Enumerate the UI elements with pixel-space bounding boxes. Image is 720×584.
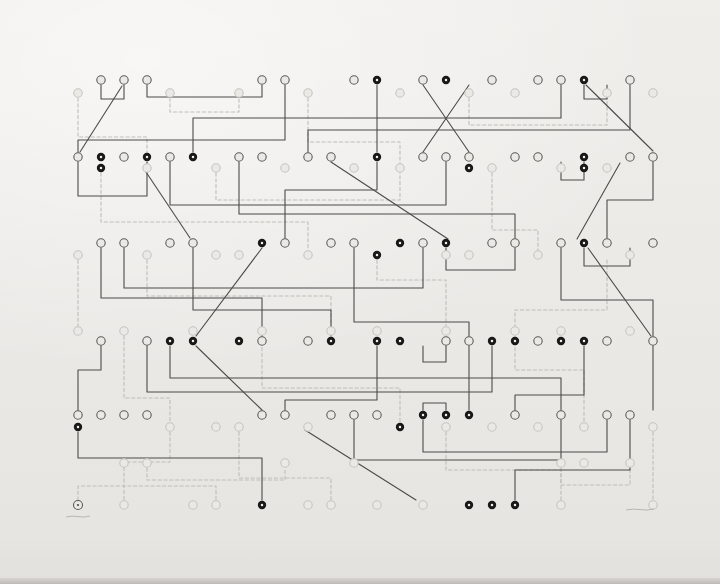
network-node-open-dark — [304, 153, 312, 161]
network-node-open-dark — [442, 337, 450, 345]
network-node-open-dark — [511, 411, 519, 419]
network-node-filled-center — [192, 340, 195, 343]
network-node-open-light — [74, 89, 82, 97]
network-node-filled-center — [445, 79, 448, 82]
network-node-open-light — [649, 501, 657, 509]
network-node-open-light — [166, 423, 174, 431]
network-node-open-dark — [373, 411, 381, 419]
network-node-open-light — [212, 251, 220, 259]
network-edge-solid — [196, 248, 262, 336]
network-node-open-light — [304, 423, 312, 431]
network-edge-solid — [354, 420, 561, 460]
network-node-filled-center — [399, 340, 402, 343]
network-node-open-dark — [649, 153, 657, 161]
network-node-open-dark — [281, 411, 289, 419]
network-svg — [0, 0, 720, 584]
network-node-open-light — [350, 459, 358, 467]
network-node-open-light — [488, 423, 496, 431]
network-node-open-light — [143, 164, 151, 172]
network-node-open-light — [396, 164, 404, 172]
network-node-open-dark — [626, 153, 634, 161]
network-node-open-light — [120, 501, 128, 509]
network-node-open-light — [511, 89, 519, 97]
network-node-filled-center — [238, 340, 241, 343]
network-node-open-dark — [74, 153, 82, 161]
network-node-filled-center — [560, 340, 563, 343]
network-node-open-dark — [189, 239, 197, 247]
network-node-filled-center — [376, 79, 379, 82]
network-node-open-light — [465, 251, 473, 259]
network-node-open-light — [373, 501, 381, 509]
network-node-open-dark — [97, 239, 105, 247]
network-node-filled-center — [491, 504, 494, 507]
network-node-open-light — [626, 327, 634, 335]
network-node-open-dark — [281, 239, 289, 247]
network-node-open-light — [258, 327, 266, 335]
network-node-open-dark — [442, 153, 450, 161]
network-node-open-dark — [626, 411, 634, 419]
network-edge-dashed — [78, 98, 147, 163]
network-node-open-light — [557, 164, 565, 172]
network-node-open-light — [580, 459, 588, 467]
network-node-open-dark — [281, 76, 289, 84]
network-edge-solid — [586, 85, 653, 151]
network-node-open-dark — [120, 76, 128, 84]
network-node-open-light — [534, 251, 542, 259]
network-node-filled-center — [376, 254, 379, 257]
network-edge-solid — [446, 248, 515, 270]
network-node-open-light — [511, 327, 519, 335]
network-node-filled-center — [583, 79, 586, 82]
network-node-open-light — [373, 327, 381, 335]
network-node-open-dark — [120, 239, 128, 247]
network-edge-solid — [101, 248, 262, 336]
network-edge-dashed — [515, 336, 584, 422]
network-node-open-light — [649, 89, 657, 97]
network-edge-solid — [78, 346, 101, 410]
network-node-open-light — [327, 501, 335, 509]
network-node-open-light — [534, 423, 542, 431]
network-node-open-dark — [649, 337, 657, 345]
network-edge-solid — [147, 346, 492, 392]
artwork-photo — [0, 0, 720, 584]
network-node-open-dark — [557, 76, 565, 84]
network-node-open-light — [212, 501, 220, 509]
network-node-open-dark — [258, 76, 266, 84]
network-node-open-light — [235, 251, 243, 259]
network-node-open-dark — [511, 153, 519, 161]
network-edge-solid — [78, 432, 262, 500]
network-node-open-light — [603, 164, 611, 172]
network-node-open-dark — [626, 76, 634, 84]
network-node-open-light — [557, 459, 565, 467]
network-node-open-light — [580, 423, 588, 431]
network-node-filled-center — [330, 340, 333, 343]
network-node-open-dark — [557, 411, 565, 419]
network-edge-solid — [354, 248, 469, 336]
chop-mark-center-dot — [77, 504, 79, 506]
paper-bottom-edge-shadow — [0, 578, 720, 584]
network-node-open-light — [189, 327, 197, 335]
network-node-open-dark — [350, 411, 358, 419]
network-edge-solid — [101, 85, 124, 99]
network-node-filled-center — [261, 504, 264, 507]
network-node-filled-center — [491, 340, 494, 343]
network-node-open-light — [626, 459, 634, 467]
network-node-filled-center — [514, 340, 517, 343]
network-node-open-light — [235, 423, 243, 431]
network-node-open-light — [603, 89, 611, 97]
network-node-open-light — [419, 501, 427, 509]
network-edge-dashed — [216, 173, 400, 200]
network-node-open-dark — [488, 76, 496, 84]
network-node-open-dark — [97, 76, 105, 84]
network-edge-dashed — [446, 432, 561, 500]
network-node-open-light — [488, 164, 496, 172]
network-node-open-dark — [166, 153, 174, 161]
network-node-open-light — [235, 89, 243, 97]
network-edge-solid — [423, 346, 446, 362]
network-node-open-dark — [327, 153, 335, 161]
network-node-open-dark — [465, 337, 473, 345]
network-node-open-dark — [419, 239, 427, 247]
network-node-filled-center — [77, 426, 80, 429]
network-node-open-light — [304, 251, 312, 259]
network-node-open-light — [442, 423, 450, 431]
network-edge-dashed — [170, 98, 239, 112]
network-node-open-light — [465, 89, 473, 97]
network-node-open-light — [74, 327, 82, 335]
network-node-filled-center — [192, 156, 195, 159]
network-node-open-dark — [120, 153, 128, 161]
network-node-open-dark — [143, 337, 151, 345]
network-node-filled-center — [100, 167, 103, 170]
network-node-open-dark — [350, 76, 358, 84]
network-node-open-dark — [143, 76, 151, 84]
network-node-open-light — [120, 327, 128, 335]
network-node-open-light — [74, 251, 82, 259]
network-node-open-light — [442, 251, 450, 259]
network-node-filled-center — [399, 426, 402, 429]
network-node-open-dark — [143, 411, 151, 419]
network-node-open-dark — [649, 239, 657, 247]
network-node-open-light — [557, 501, 565, 509]
network-node-filled-center — [468, 414, 471, 417]
network-edge-dashed — [262, 336, 400, 422]
network-node-open-light — [557, 327, 565, 335]
network-node-filled-center — [445, 242, 448, 245]
network-edge-dashed — [469, 98, 607, 125]
network-node-filled-center — [146, 156, 149, 159]
network-node-open-light — [281, 459, 289, 467]
network-node-open-light — [442, 327, 450, 335]
network-node-open-dark — [419, 76, 427, 84]
network-edge-solid — [147, 85, 262, 97]
network-node-open-light — [304, 89, 312, 97]
pencil-inscription-left — [66, 516, 90, 517]
network-node-open-dark — [166, 239, 174, 247]
network-node-open-light — [189, 501, 197, 509]
network-node-filled-center — [399, 242, 402, 245]
network-edge-solid — [78, 162, 147, 196]
network-node-filled-center — [261, 242, 264, 245]
network-edge-solid — [588, 248, 651, 336]
network-node-filled-center — [169, 340, 172, 343]
network-node-filled-center — [583, 242, 586, 245]
network-node-open-dark — [534, 76, 542, 84]
network-node-open-dark — [304, 337, 312, 345]
network-edge-dashed — [147, 260, 331, 326]
network-node-open-light — [281, 164, 289, 172]
network-edge-solid — [305, 430, 416, 500]
network-node-filled-center — [468, 167, 471, 170]
network-node-open-dark — [534, 153, 542, 161]
network-node-open-dark — [258, 153, 266, 161]
network-node-open-light — [649, 423, 657, 431]
network-node-open-light — [120, 459, 128, 467]
network-node-open-dark — [327, 239, 335, 247]
network-edge-solid — [423, 420, 607, 452]
network-node-open-dark — [603, 337, 611, 345]
network-node-open-light — [212, 423, 220, 431]
network-node-open-dark — [465, 153, 473, 161]
network-node-open-dark — [120, 411, 128, 419]
network-node-open-light — [212, 164, 220, 172]
network-node-filled-center — [445, 414, 448, 417]
network-node-open-dark — [534, 337, 542, 345]
network-node-open-dark — [97, 411, 105, 419]
network-node-filled-center — [514, 504, 517, 507]
network-node-filled-center — [468, 504, 471, 507]
network-node-open-dark — [419, 153, 427, 161]
network-node-open-dark — [603, 411, 611, 419]
network-node-filled-center — [376, 156, 379, 159]
network-node-open-dark — [97, 337, 105, 345]
network-node-open-dark — [258, 337, 266, 345]
network-node-open-dark — [603, 239, 611, 247]
network-edge-dashed — [377, 260, 446, 326]
network-node-open-light — [396, 89, 404, 97]
network-node-filled-center — [100, 156, 103, 159]
network-node-filled-center — [422, 414, 425, 417]
network-node-open-light — [327, 327, 335, 335]
network-node-open-dark — [74, 411, 82, 419]
network-node-open-dark — [258, 411, 266, 419]
network-node-filled-center — [583, 167, 586, 170]
network-edge-solid — [423, 403, 446, 410]
network-node-open-dark — [511, 239, 519, 247]
network-node-filled-center — [583, 156, 586, 159]
network-node-open-dark — [488, 239, 496, 247]
pencil-inscription-right — [626, 509, 654, 510]
network-node-open-light — [143, 251, 151, 259]
network-node-open-light — [166, 89, 174, 97]
network-node-filled-center — [583, 340, 586, 343]
network-node-open-light — [143, 459, 151, 467]
network-node-open-light — [304, 501, 312, 509]
network-node-open-dark — [350, 239, 358, 247]
network-artwork — [0, 0, 720, 584]
network-node-open-dark — [327, 411, 335, 419]
network-edge-dashed — [78, 486, 216, 500]
network-node-filled-center — [376, 340, 379, 343]
network-edge-dashed — [101, 173, 308, 250]
network-node-open-dark — [557, 239, 565, 247]
network-node-open-dark — [235, 153, 243, 161]
network-node-open-light — [350, 164, 358, 172]
network-node-open-light — [626, 251, 634, 259]
